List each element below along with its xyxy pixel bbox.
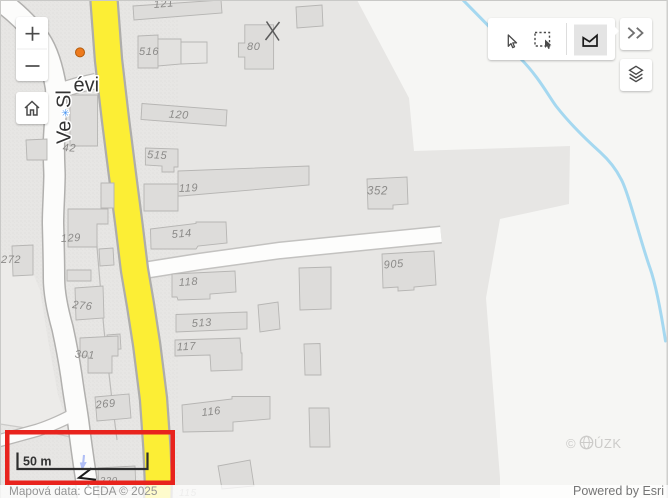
svg-text:80: 80 bbox=[247, 41, 261, 53]
svg-text:Ve: Ve bbox=[54, 121, 76, 144]
svg-text:514: 514 bbox=[171, 227, 192, 241]
svg-text:269: 269 bbox=[94, 397, 116, 411]
svg-text:515: 515 bbox=[147, 149, 168, 162]
svg-text:©: © bbox=[566, 436, 576, 451]
svg-text:118: 118 bbox=[178, 276, 198, 289]
svg-text:évi: évi bbox=[74, 75, 100, 97]
svg-text:905: 905 bbox=[383, 258, 404, 272]
svg-text:Sl: Sl bbox=[54, 90, 76, 108]
svg-text:116: 116 bbox=[201, 405, 222, 419]
svg-text:121: 121 bbox=[153, 0, 174, 11]
svg-text:ÚZK: ÚZK bbox=[594, 436, 622, 451]
svg-text:120: 120 bbox=[168, 109, 189, 122]
svg-text:272: 272 bbox=[0, 254, 21, 266]
svg-text:352: 352 bbox=[367, 186, 388, 198]
svg-text:119: 119 bbox=[179, 182, 199, 195]
svg-text:117: 117 bbox=[177, 340, 197, 353]
svg-text:516: 516 bbox=[139, 46, 159, 58]
svg-text:129: 129 bbox=[61, 232, 82, 245]
svg-text:301: 301 bbox=[74, 349, 95, 362]
svg-text:276: 276 bbox=[71, 299, 94, 313]
svg-text:✳: ✳ bbox=[61, 109, 72, 117]
svg-text:50 m: 50 m bbox=[23, 455, 52, 469]
svg-text:513: 513 bbox=[191, 317, 212, 330]
